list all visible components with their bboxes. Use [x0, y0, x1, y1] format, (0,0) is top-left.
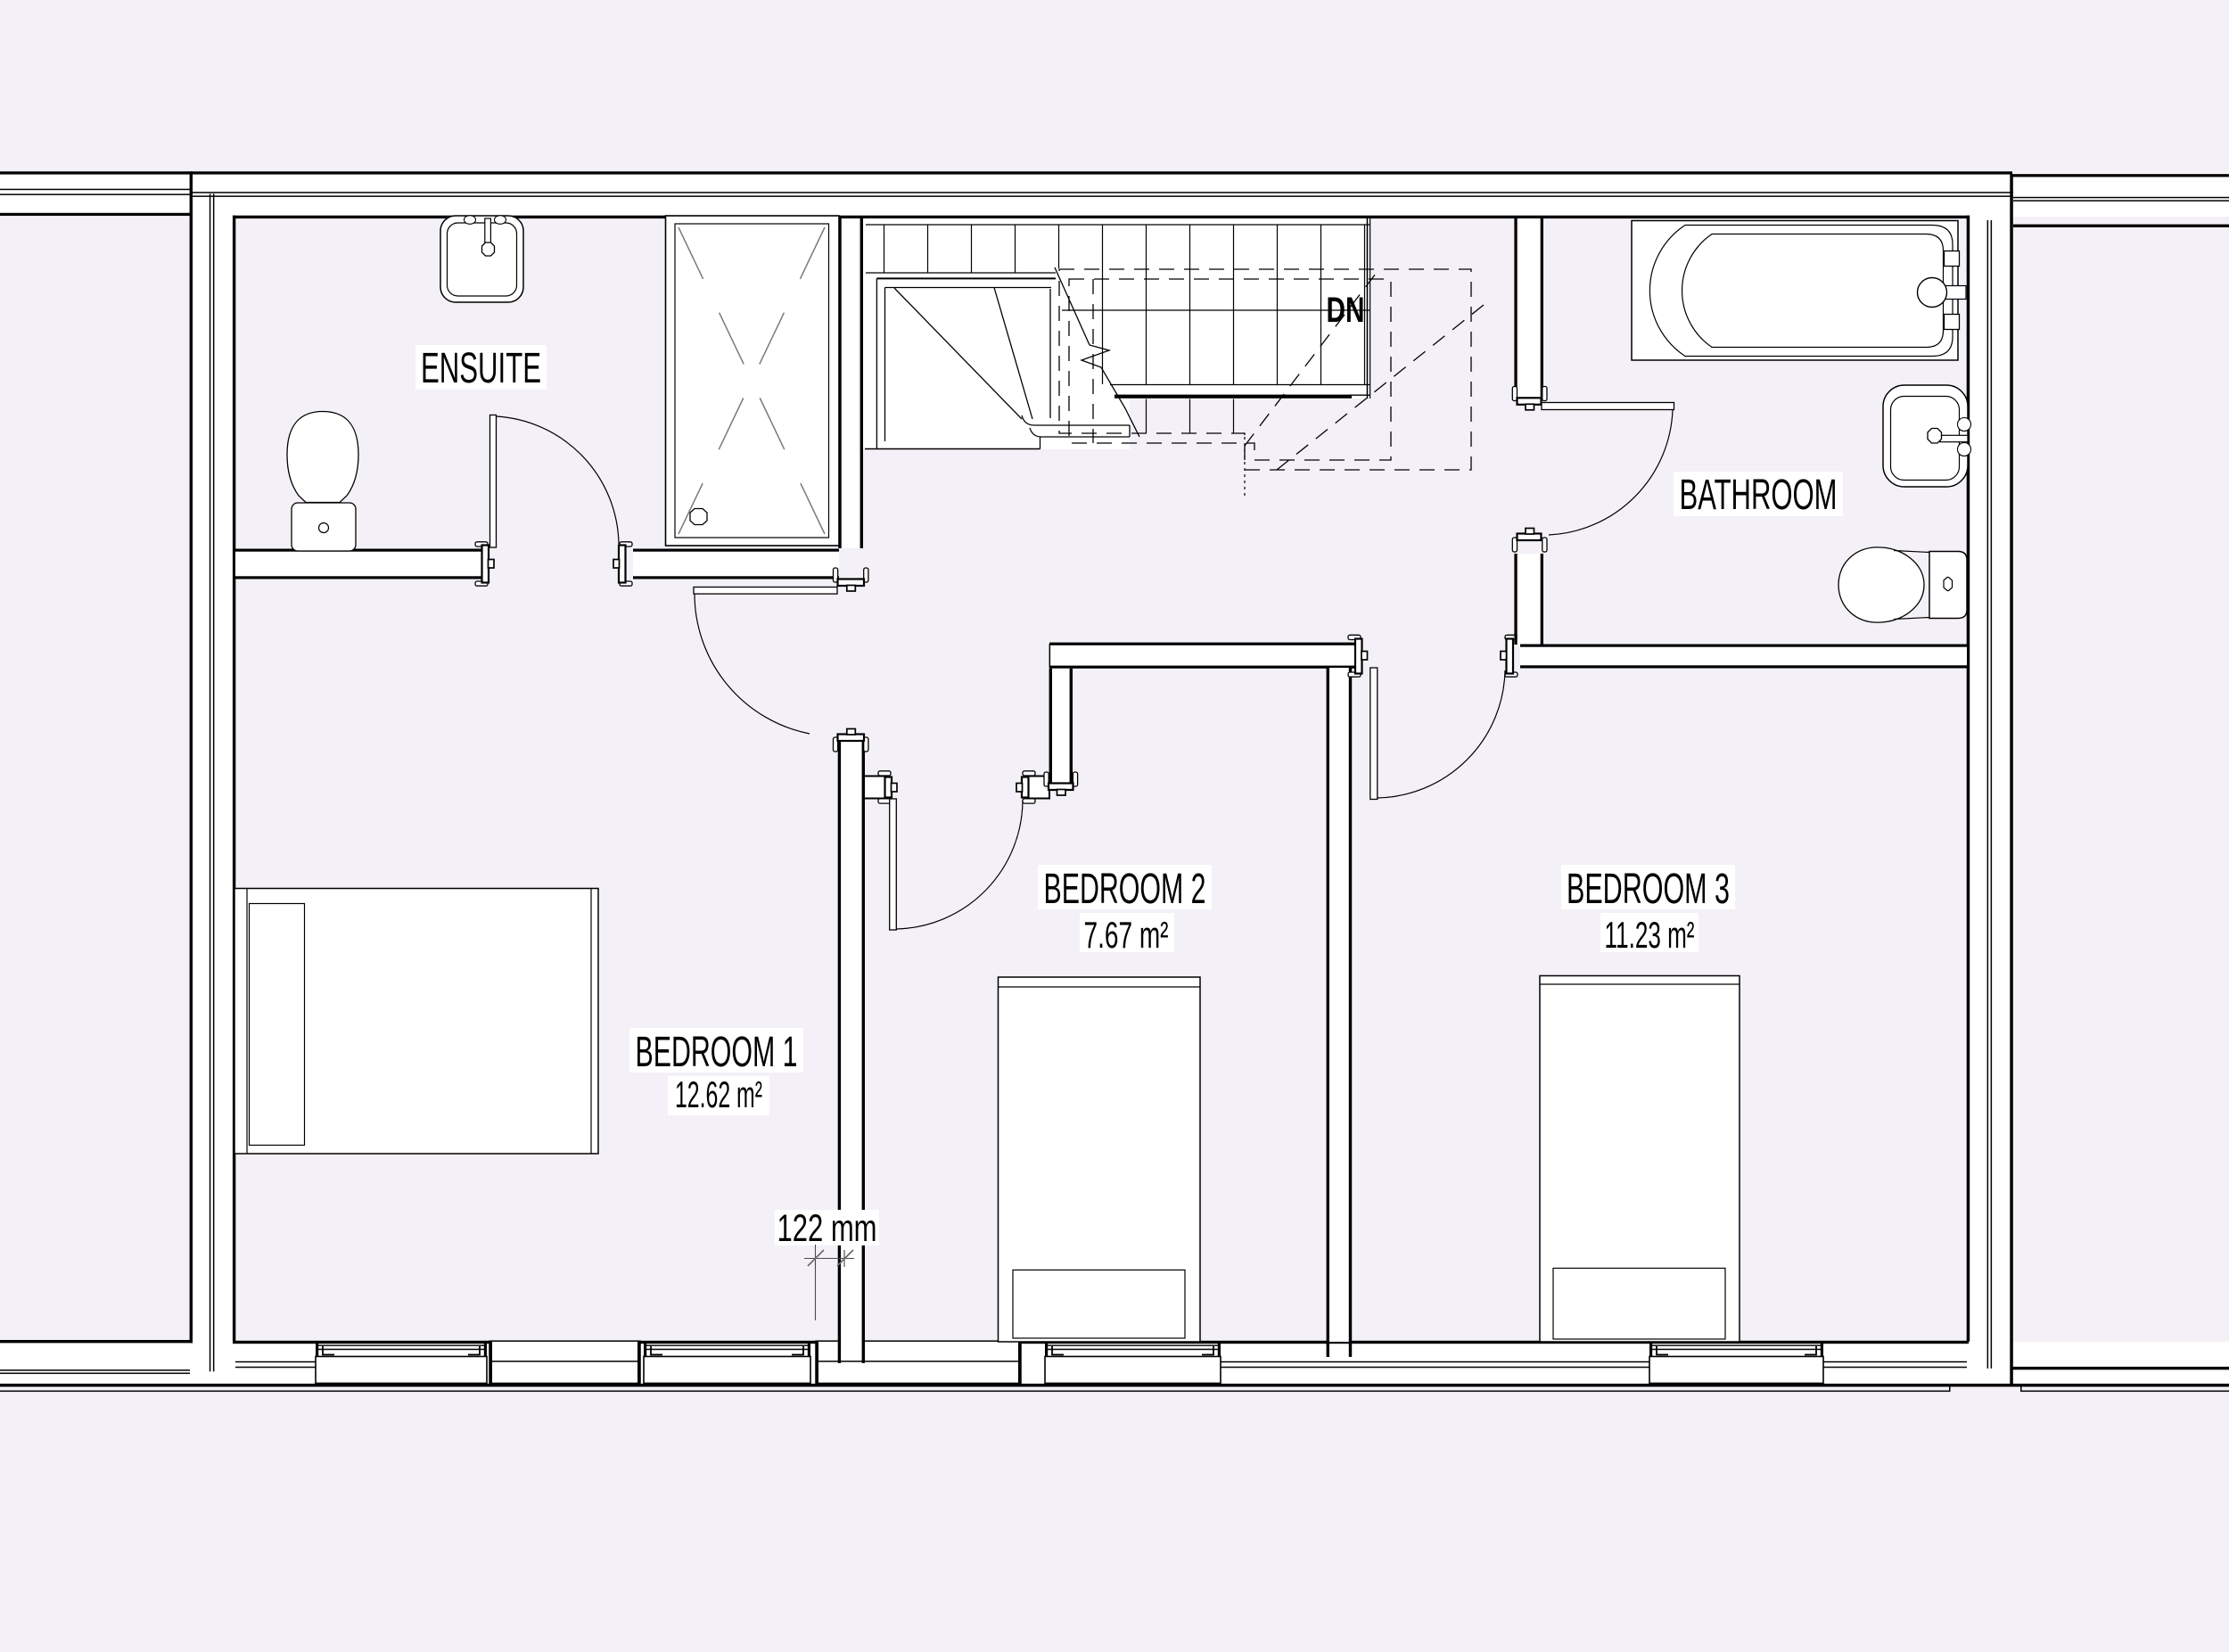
svg-text:ENSUITE: ENSUITE: [421, 345, 541, 392]
svg-text:BEDROOM 3: BEDROOM 3: [1567, 866, 1730, 913]
svg-text:11.23 m²: 11.23 m²: [1605, 914, 1695, 956]
svg-text:BATHROOM: BATHROOM: [1680, 472, 1838, 519]
svg-text:122 mm: 122 mm: [777, 1207, 877, 1250]
svg-text:BEDROOM 1: BEDROOM 1: [636, 1029, 798, 1076]
svg-text:BEDROOM 2: BEDROOM 2: [1044, 866, 1206, 913]
svg-text:7.67 m²: 7.67 m²: [1084, 914, 1169, 956]
svg-text:12.62 m²: 12.62 m²: [675, 1073, 762, 1115]
svg-text:DN: DN: [1327, 291, 1365, 330]
